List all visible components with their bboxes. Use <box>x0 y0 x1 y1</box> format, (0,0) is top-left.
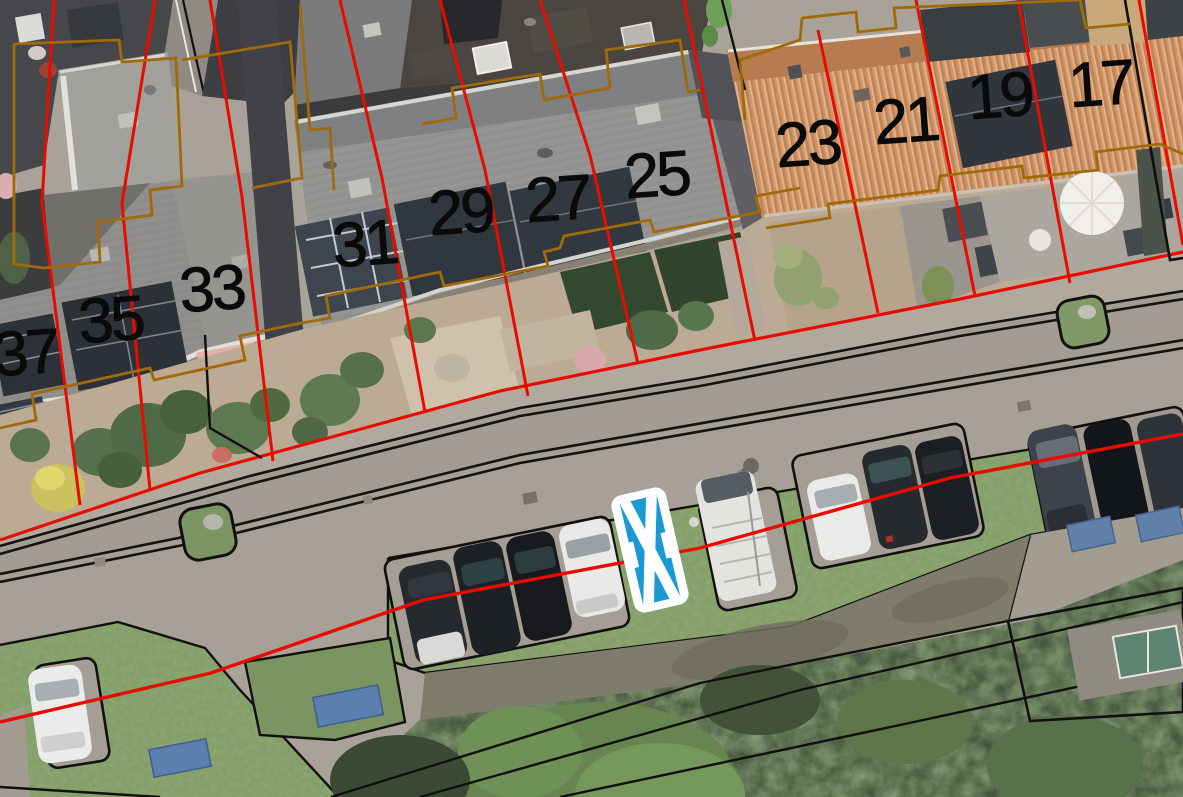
svg-text:29: 29 <box>426 175 496 249</box>
svg-text:31: 31 <box>330 207 399 281</box>
svg-text:21: 21 <box>871 84 940 158</box>
svg-text:23: 23 <box>773 107 843 181</box>
svg-text:19: 19 <box>965 59 1035 133</box>
svg-text:37: 37 <box>0 316 60 390</box>
svg-text:35: 35 <box>76 283 146 357</box>
svg-text:17: 17 <box>1066 47 1135 121</box>
svg-text:25: 25 <box>622 138 692 212</box>
svg-text:33: 33 <box>177 252 247 326</box>
svg-text:27: 27 <box>523 162 592 236</box>
